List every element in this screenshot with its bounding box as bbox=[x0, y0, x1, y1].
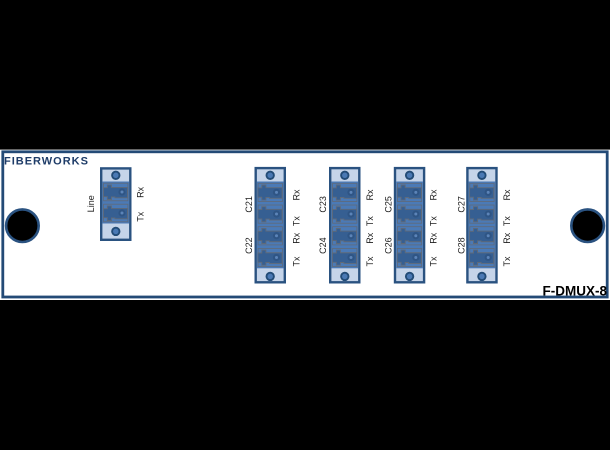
svg-text:Tx: Tx bbox=[502, 256, 512, 266]
svg-text:Rx: Rx bbox=[429, 189, 439, 200]
svg-text:Tx: Tx bbox=[502, 216, 512, 226]
svg-text:FIBERWORKS: FIBERWORKS bbox=[4, 156, 89, 168]
svg-text:C25: C25 bbox=[383, 196, 393, 213]
svg-text:Line: Line bbox=[86, 195, 96, 212]
svg-text:Rx: Rx bbox=[502, 232, 512, 243]
svg-text:Rx: Rx bbox=[365, 189, 375, 200]
svg-text:C26: C26 bbox=[383, 237, 393, 254]
svg-text:F-DMUX-8: F-DMUX-8 bbox=[543, 283, 608, 298]
svg-text:Rx: Rx bbox=[429, 232, 439, 243]
svg-text:C22: C22 bbox=[244, 237, 254, 254]
svg-text:Rx: Rx bbox=[365, 232, 375, 243]
svg-text:Rx: Rx bbox=[136, 186, 146, 197]
svg-text:C27: C27 bbox=[456, 196, 466, 213]
svg-text:C28: C28 bbox=[456, 237, 466, 254]
svg-text:C23: C23 bbox=[318, 196, 328, 213]
svg-text:Tx: Tx bbox=[429, 216, 439, 226]
svg-text:Rx: Rx bbox=[291, 189, 301, 200]
svg-text:Tx: Tx bbox=[365, 256, 375, 266]
svg-text:C21: C21 bbox=[244, 196, 254, 213]
svg-text:Tx: Tx bbox=[365, 216, 375, 226]
svg-text:Tx: Tx bbox=[429, 256, 439, 266]
svg-text:Tx: Tx bbox=[291, 256, 301, 266]
svg-text:C24: C24 bbox=[318, 237, 328, 254]
svg-text:Tx: Tx bbox=[136, 211, 146, 221]
svg-text:Rx: Rx bbox=[291, 232, 301, 243]
svg-text:Rx: Rx bbox=[502, 189, 512, 200]
svg-text:Tx: Tx bbox=[291, 216, 301, 226]
